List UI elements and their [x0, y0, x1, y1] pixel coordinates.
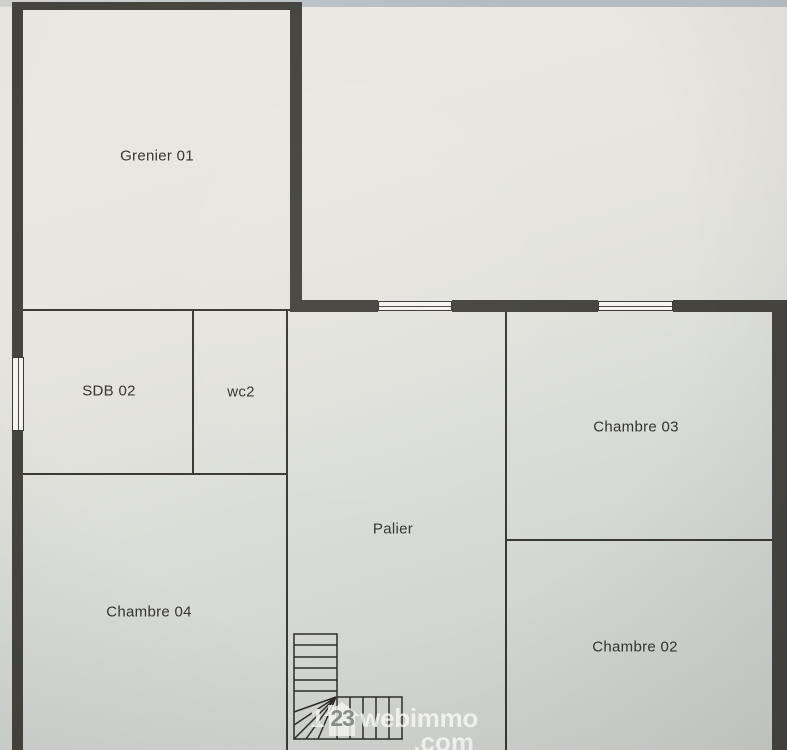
room-label-grenier-01: Grenier 01 — [120, 148, 194, 165]
partition-chambre03-chambre02 — [505, 539, 772, 541]
wall-top — [12, 2, 302, 10]
watermark-house: 23 — [324, 701, 360, 736]
window-left-wall — [12, 357, 24, 431]
room-label-palier: Palier — [373, 521, 413, 538]
window-top-1 — [378, 301, 452, 311]
room-label-sdb-02: SDB 02 — [82, 383, 136, 400]
wall-grenier-right — [290, 2, 302, 312]
partition-grenier-bottom — [23, 309, 291, 311]
room-label-chambre-03: Chambre 03 — [593, 419, 679, 436]
watermark-digits-23: 23 — [330, 705, 354, 732]
wall-main-segment-1 — [290, 300, 378, 312]
watermark: 1 23 webimmo .com — [310, 701, 476, 750]
partition-palier-right — [505, 312, 507, 750]
wall-left-upper — [12, 2, 23, 357]
wall-main-segment-2 — [452, 300, 598, 312]
wall-right — [772, 300, 787, 750]
wall-main-segment-3 — [673, 300, 787, 312]
partition-palier-left — [286, 309, 288, 750]
watermark-digit-1: 1 — [310, 703, 324, 734]
wall-left-lower — [12, 431, 23, 750]
room-label-chambre-04: Chambre 04 — [106, 604, 192, 621]
partition-sdb-wc — [192, 309, 194, 475]
partition-sdb-bottom — [23, 473, 288, 475]
stairs-treads-horizontal — [294, 645, 337, 691]
room-label-wc2: wc2 — [227, 384, 255, 401]
room-label-chambre-02: Chambre 02 — [592, 639, 678, 656]
floor-plan: Grenier 01 SDB 02 wc2 Chambre 03 Palier … — [0, 0, 787, 750]
window-top-2 — [598, 301, 673, 311]
